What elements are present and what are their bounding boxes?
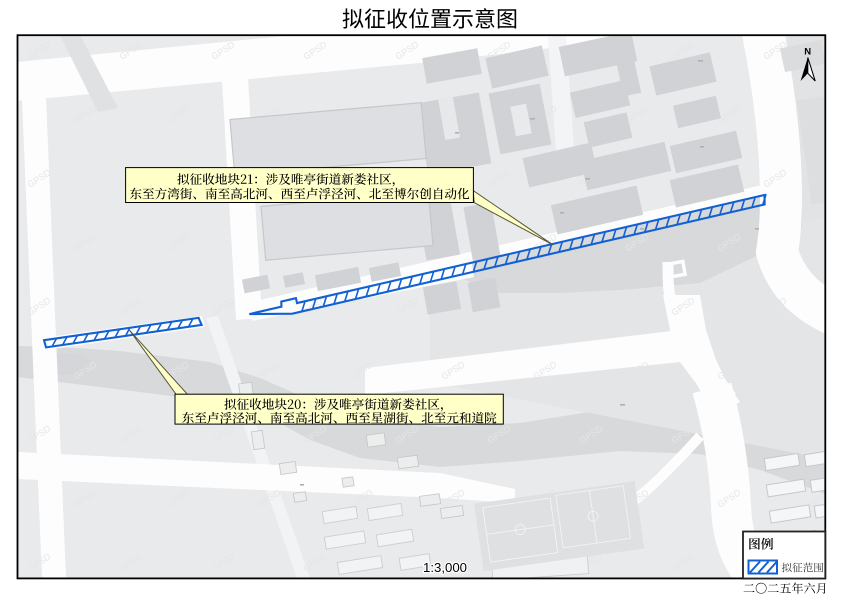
svg-text:N: N xyxy=(804,47,811,58)
svg-text:1:3,000: 1:3,000 xyxy=(423,560,467,575)
